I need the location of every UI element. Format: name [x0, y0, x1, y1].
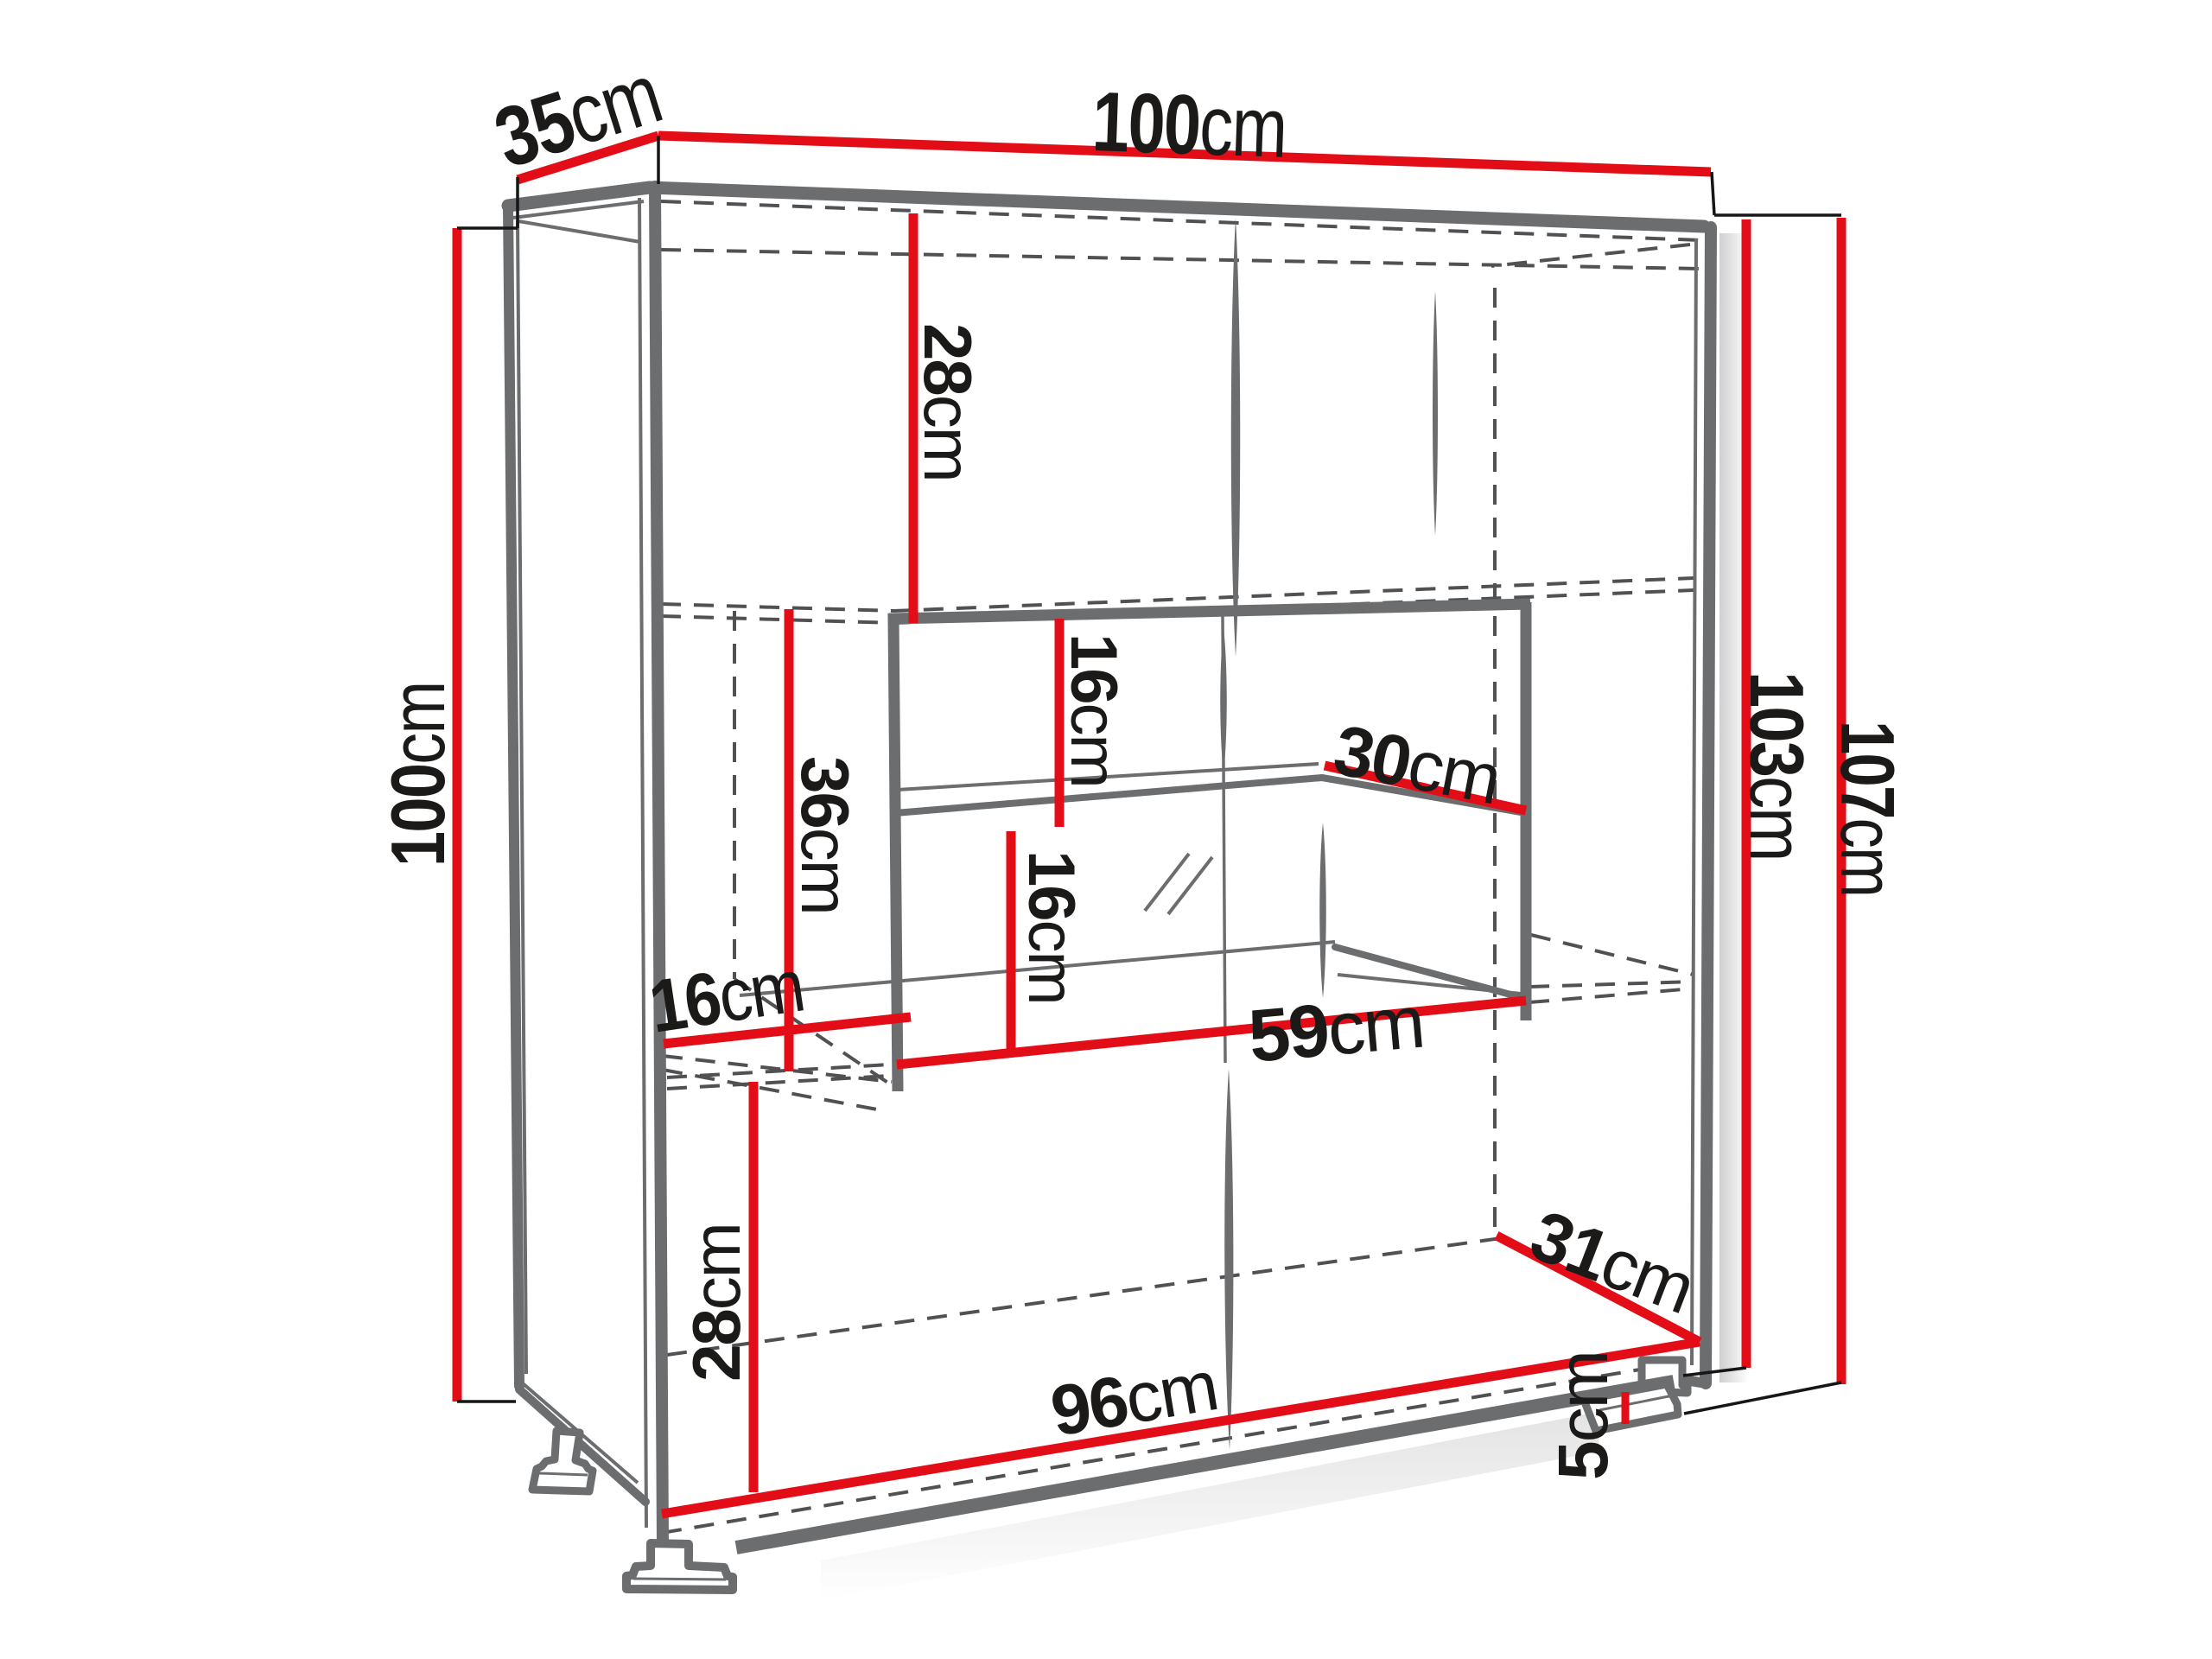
svg-text:5cm: 5cm	[1544, 1351, 1623, 1480]
svg-text:36cm: 36cm	[787, 756, 863, 914]
svg-text:107cm: 107cm	[1825, 721, 1910, 896]
svg-text:16cm: 16cm	[1014, 850, 1088, 1004]
svg-text:28cm: 28cm	[678, 1224, 754, 1382]
svg-text:16cm: 16cm	[1057, 633, 1130, 787]
svg-text:100cm: 100cm	[376, 683, 461, 867]
svg-text:103cm: 103cm	[1734, 671, 1819, 861]
svg-text:100cm: 100cm	[1090, 73, 1287, 175]
svg-text:59cm: 59cm	[1245, 981, 1427, 1078]
svg-text:28cm: 28cm	[910, 323, 986, 481]
